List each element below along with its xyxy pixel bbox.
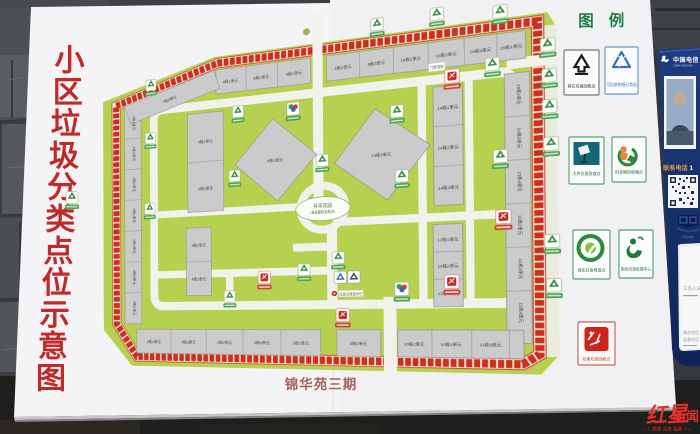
svg-text:7栋2单元: 7栋2单元 (132, 177, 137, 193)
svg-text:垃圾分类宣传栏: 垃圾分类宣传栏 (339, 291, 363, 296)
svg-text:3栋1单元: 3栋1单元 (132, 301, 137, 317)
svg-text:2栋1单元: 2栋1单元 (254, 339, 270, 345)
svg-text:CHINA TELECOM: CHINA TELECOM (673, 65, 692, 68)
svg-text:─∣ 锐度 深度 温度 ∣─: ─∣ 锐度 深度 温度 ∣─ (642, 426, 692, 433)
svg-text:可回收物细分类站: 可回收物细分类站 (606, 82, 637, 87)
svg-text:圾: 圾 (49, 140, 79, 173)
svg-text:联系电话 1: 联系电话 1 (663, 164, 693, 172)
svg-text:10栋2单元: 10栋2单元 (404, 341, 425, 347)
svg-text:厨余垃圾处理中心: 厨余垃圾处理中心 (621, 267, 652, 272)
svg-text:2栋3单元: 2栋3单元 (181, 339, 196, 345)
svg-text:12栋2单元: 12栋2单元 (438, 262, 460, 269)
svg-text:位: 位 (42, 266, 72, 300)
svg-text:点: 点 (43, 235, 73, 268)
svg-text:10栋1单元: 10栋1单元 (441, 341, 463, 348)
svg-text:区: 区 (53, 76, 83, 109)
svg-text:4栋1单元: 4栋1单元 (192, 276, 207, 282)
svg-text:监督电话: 监督电话 (683, 336, 699, 342)
svg-text:2栋2单元: 2栋2单元 (217, 339, 233, 345)
svg-text:9栋1单元: 9栋1单元 (350, 340, 368, 346)
svg-text:绿化垃圾堆放点: 绿化垃圾堆放点 (578, 267, 606, 273)
svg-text:3栋2单元: 3栋2单元 (132, 270, 137, 286)
svg-text:图: 图 (578, 12, 594, 30)
svg-text:11栋5单元: 11栋5单元 (480, 341, 503, 348)
svg-text:中国电信: 中国电信 (682, 234, 694, 239)
svg-text:6栋2单元: 6栋2单元 (198, 185, 214, 192)
svg-text:3栋3单元: 3栋3单元 (132, 239, 137, 255)
svg-text:图: 图 (36, 363, 66, 396)
svg-text:工作人员: 工作人员 (683, 285, 700, 292)
svg-text:服务电话: 服务电话 (683, 329, 699, 335)
svg-text:2栋4单元: 2栋4单元 (147, 339, 162, 345)
svg-text:垃: 垃 (51, 107, 81, 141)
svg-text:7栋1单元: 7栋1单元 (132, 208, 137, 224)
svg-text:大件垃圾投放点: 大件垃圾投放点 (573, 170, 601, 176)
svg-text:锦华苑三期: 锦华苑三期 (285, 376, 358, 392)
svg-text:其它垃圾回收点: 其它垃圾回收点 (568, 83, 596, 89)
svg-text:旧衣物回收箱点: 旧衣物回收箱点 (615, 169, 643, 175)
svg-text:4栋2单元: 4栋2单元 (191, 242, 206, 248)
svg-text:小: 小 (55, 45, 85, 78)
svg-text:1栋1单元: 1栋1单元 (293, 340, 310, 346)
svg-text:示: 示 (40, 299, 70, 332)
svg-text:意: 意 (38, 330, 68, 364)
svg-text:新闻: 新闻 (673, 409, 699, 424)
svg-text:7栋4单元: 7栋4单元 (132, 115, 137, 131)
svg-text:例: 例 (609, 11, 625, 30)
svg-text:7栋3单元: 7栋3单元 (132, 146, 137, 162)
svg-text:有害垃圾回收点: 有害垃圾回收点 (583, 356, 611, 362)
svg-text:中国电信: 中国电信 (673, 56, 699, 64)
svg-text:12栋1单元: 12栋1单元 (437, 235, 459, 242)
